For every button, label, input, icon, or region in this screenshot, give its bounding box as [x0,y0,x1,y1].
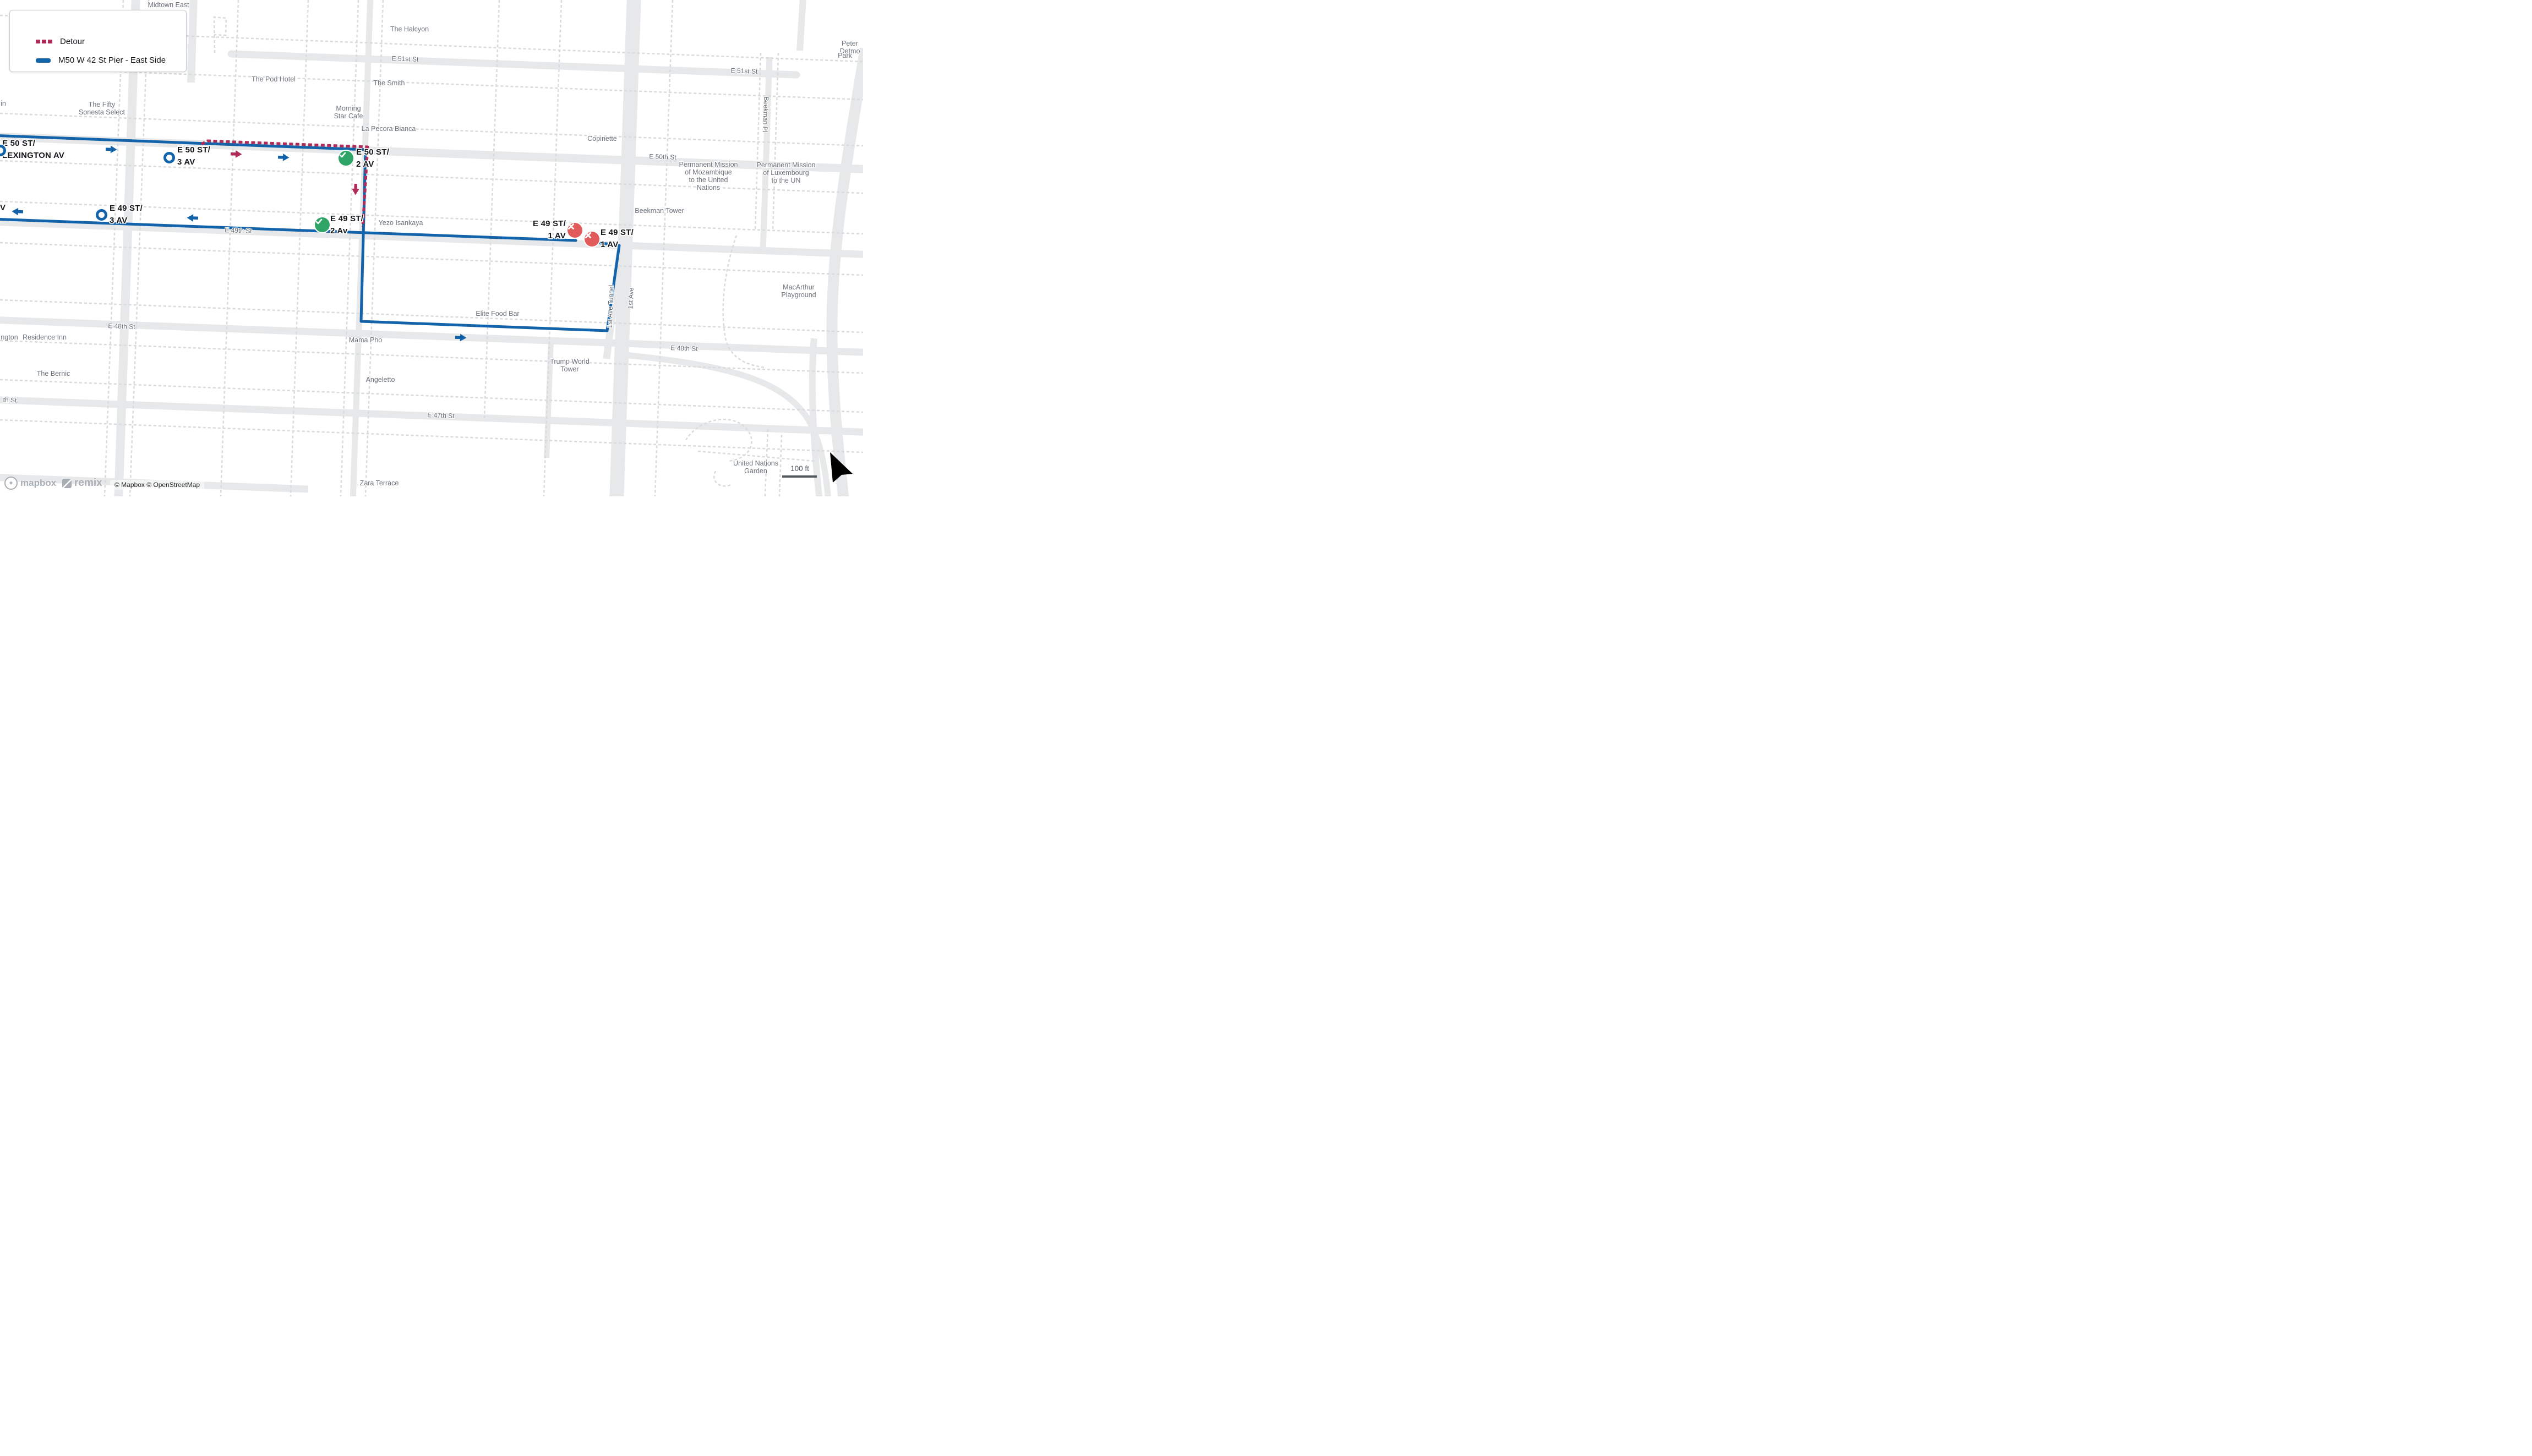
street-label: E 51st St [391,54,418,63]
street-label: Beekman Pl [761,96,770,132]
poi-label: The Pod Hotel [252,75,296,83]
street-label: E 48th St [670,344,698,353]
mapbox-logo-icon: ✦ [4,477,18,490]
poi-label: Beekman Tower [635,207,684,215]
poi-label-cut: ngton [1,333,18,341]
poi-label: Morning Star Cafe [334,105,363,120]
poi-label: Yezo Isankaya [379,219,423,227]
street-label: E 51st St [730,67,757,75]
poi-label: Angeletto [366,376,395,384]
stop-label: E 49 ST/ 2 Av [330,213,363,237]
stop-label: E 50 ST/ LEXINGTON AV [2,138,64,162]
poi-label: Copinette [587,135,617,143]
poi-label: Permanent Mission of Luxembourg to the U… [757,161,816,184]
arrow-detour-east-icon [231,150,242,158]
poi-label: The Fifty Sonesta Select [79,101,125,116]
street-label: E 50th St [649,152,676,161]
map-canvas[interactable]: E 51st St E 51st St E 50th St E 49th St … [0,0,863,496]
legend-label-route: M50 W 42 St Pier - East Side [58,56,166,65]
poi-label: Midtown East [148,1,189,9]
attribution[interactable]: © Mapbox © OpenStreetMap [110,480,204,490]
arrow-west-icon [187,214,198,222]
arrow-east-icon [106,145,117,153]
street-label: E 47th St [427,411,455,420]
x-icon [567,223,575,230]
street-label-cut: th St [3,396,17,404]
remix-logo[interactable]: remix [62,477,102,489]
arrow-west-icon [12,207,23,215]
scale-bar [782,475,817,478]
poi-label: Permanent Mission of Mozambique to the U… [679,161,738,191]
street-label: 1st Ave Tunnel [606,285,615,329]
poi-label: The Halcyon [390,25,429,33]
bus-stop-marker [163,152,175,163]
poi-label: MacArthur Playground [781,283,816,299]
stop-label: E 49 ST/ 1 AV [601,227,634,251]
x-icon [585,232,592,239]
mapbox-wordmark: mapbox [20,478,56,489]
poi-label: Residence Inn [23,333,67,341]
detour-line-swatch [36,40,52,43]
arrow-east-icon [278,154,290,161]
legend-label-detour: Detour [60,37,85,46]
poi-label: Mama Pho [349,336,382,344]
poi-label: Elite Food Bar [476,310,519,318]
direction-arrows [12,145,466,341]
check-icon [315,217,323,226]
stop-label: E 49 ST/ 3 AV [110,202,143,227]
poi-label: Trump World Tower [550,358,590,373]
stop-label: E 50 ST/ 3 AV [177,144,210,168]
mapbox-logo[interactable]: ✦ mapbox [4,477,56,490]
poi-label: The Bernic [37,370,70,377]
remix-logo-icon [62,479,72,488]
poi-label-cut: in [1,100,6,107]
stop-open-marker [315,217,330,232]
arrow-detour-south-icon [352,184,359,195]
stop-label: E 49 ST/ 1 AV [500,218,566,242]
check-icon [339,151,347,159]
stop-open-marker [339,151,353,166]
poi-label-cut: Park [838,52,852,59]
scale-label: 100 ft [782,464,818,473]
remix-wordmark: remix [74,477,102,489]
street-label: 1st Ave [626,287,635,309]
bus-stop-marker [96,209,107,221]
poi-label: La Pecora Bianca [362,125,416,133]
stop-closed-marker [585,232,599,247]
poi-label: The Smith [374,79,405,87]
legend: Detour M50 W 42 St Pier - East Side [9,10,187,72]
stop-label-cut: V [0,202,6,214]
stop-closed-marker [567,223,582,238]
poi-label: United Nations Garden [733,459,778,475]
street-label: E 48th St [108,322,135,331]
route-line-swatch [36,58,51,63]
route-m50-e49-line [0,219,576,240]
street-label: E 49th St [225,226,252,235]
stop-label: E 50 ST/ 2 AV [356,146,389,171]
poi-label: Zara Terrace [360,479,399,487]
